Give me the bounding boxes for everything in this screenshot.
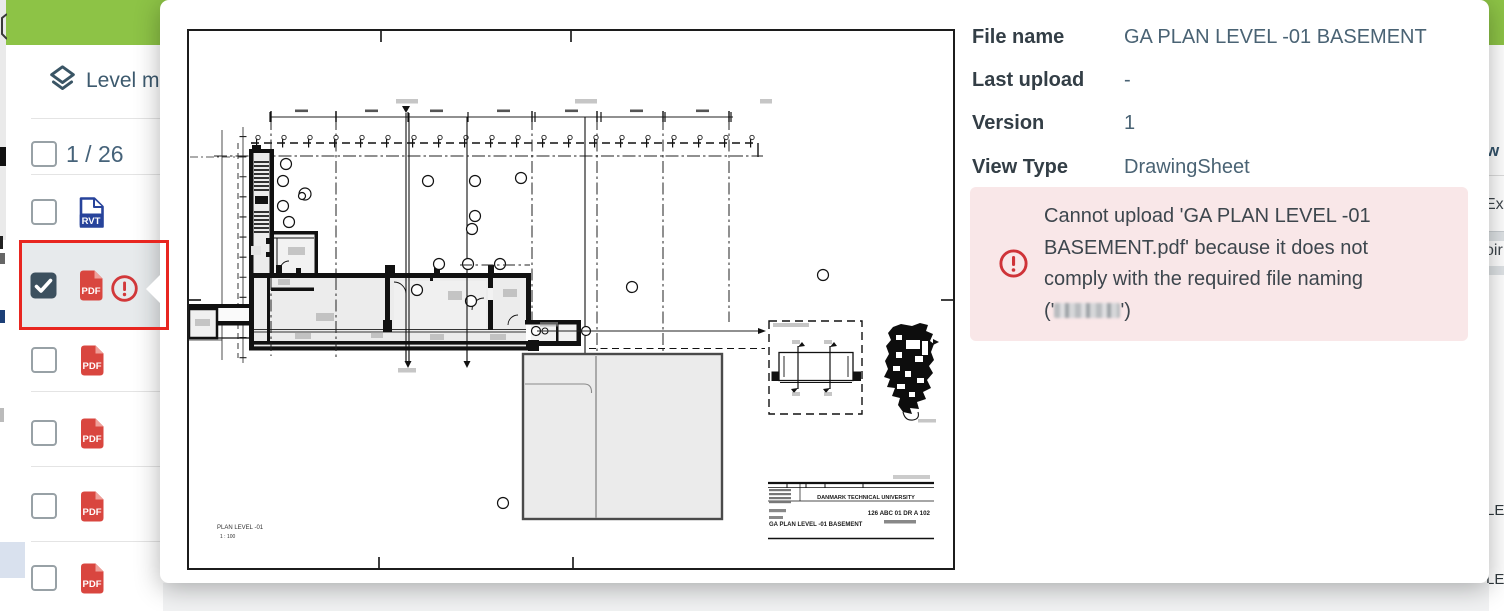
svg-text:PDF: PDF bbox=[83, 434, 102, 445]
svg-text:GA PLAN LEVEL -01 BASEMENT: GA PLAN LEVEL -01 BASEMENT bbox=[769, 522, 863, 528]
svg-text:PDF: PDF bbox=[83, 507, 102, 518]
svg-text:PDF: PDF bbox=[83, 579, 102, 590]
svg-text:RVT: RVT bbox=[82, 216, 101, 227]
svg-text:PLAN LEVEL -01: PLAN LEVEL -01 bbox=[217, 525, 264, 531]
svg-text:DANMARK TECHNICAL UNIVERSITY: DANMARK TECHNICAL UNIVERSITY bbox=[817, 495, 915, 501]
svg-text:1 : 100: 1 : 100 bbox=[220, 534, 236, 540]
svg-text:PDF: PDF bbox=[83, 361, 102, 372]
svg-text:126 ABC 01 DR A 102: 126 ABC 01 DR A 102 bbox=[868, 510, 931, 517]
